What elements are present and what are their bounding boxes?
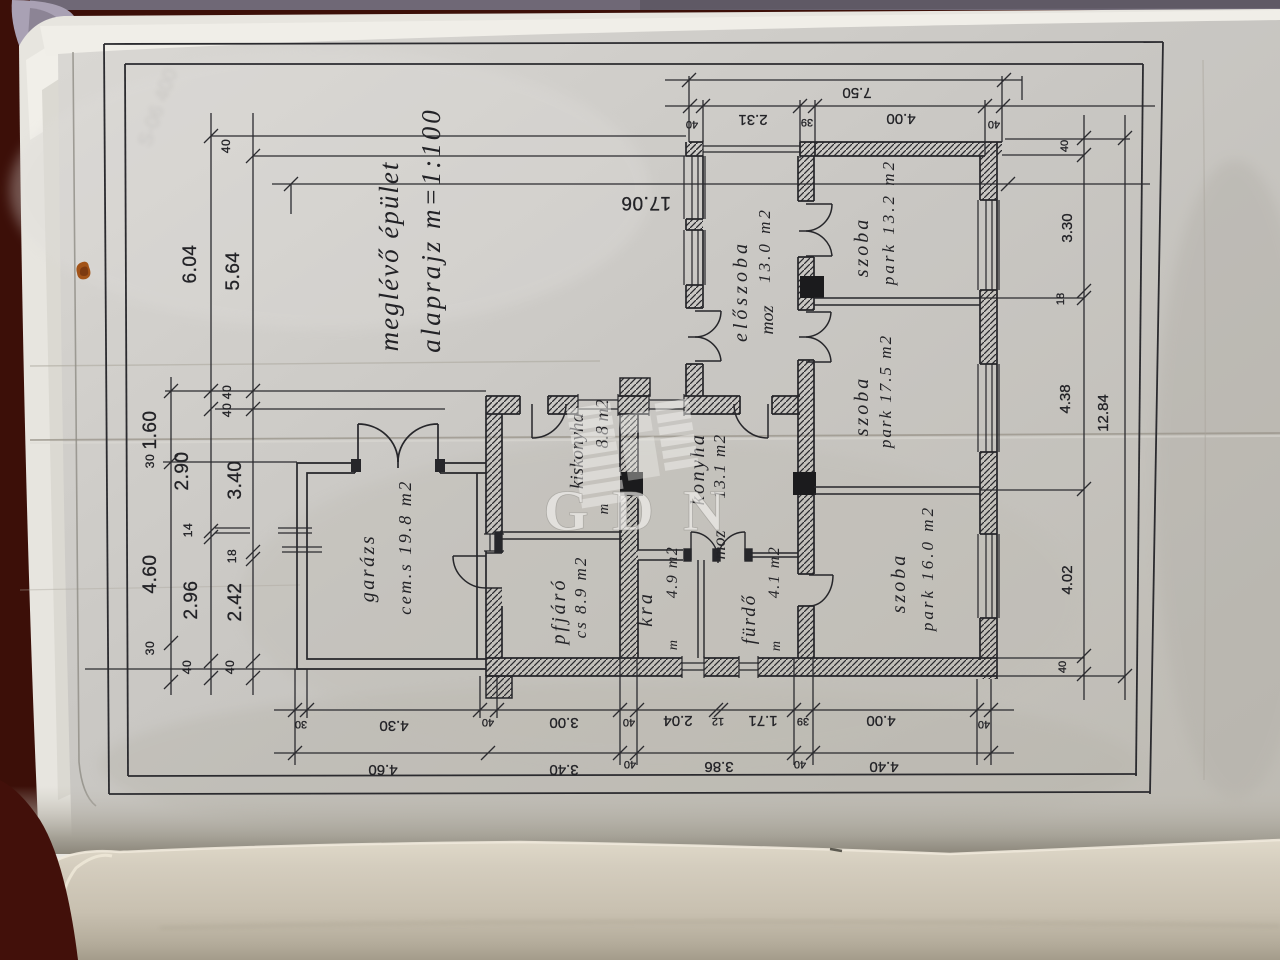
svg-text:7.50: 7.50 [842, 84, 871, 101]
svg-text:40: 40 [223, 660, 237, 674]
svg-text:G: G [543, 478, 588, 543]
svg-text:alaprajz m=1:100: alaprajz m=1:100 [416, 107, 446, 352]
svg-text:4.60: 4.60 [368, 761, 397, 778]
svg-text:40: 40 [220, 403, 234, 417]
svg-text:14: 14 [181, 523, 195, 537]
svg-text:40: 40 [220, 385, 234, 399]
svg-text:4.30: 4.30 [379, 717, 408, 734]
svg-text:39: 39 [797, 715, 809, 727]
svg-text:12.84: 12.84 [1095, 394, 1112, 432]
svg-text:4.02: 4.02 [1059, 565, 1076, 594]
svg-text:18: 18 [1055, 293, 1067, 305]
svg-text:4.38: 4.38 [1057, 384, 1074, 413]
svg-text:13.0 m2: 13.0 m2 [755, 207, 774, 283]
svg-text:2.04: 2.04 [663, 712, 692, 729]
svg-text:6.04: 6.04 [180, 245, 201, 284]
svg-text:4.00: 4.00 [866, 712, 895, 729]
svg-text:4.1 m2: 4.1 m2 [766, 546, 783, 599]
svg-text:pfjáró: pfjáró [548, 578, 570, 647]
svg-text:2.90: 2.90 [172, 452, 193, 491]
svg-text:3.00: 3.00 [549, 714, 578, 731]
svg-text:2.42: 2.42 [225, 583, 246, 622]
svg-text:3.86: 3.86 [704, 758, 733, 775]
svg-text:2.96: 2.96 [181, 581, 202, 620]
svg-text:40: 40 [482, 716, 494, 728]
svg-text:moz: moz [757, 305, 777, 334]
svg-text:D: D [612, 478, 654, 543]
svg-text:40: 40 [794, 758, 806, 770]
svg-text:szoba: szoba [851, 217, 873, 278]
svg-text:40: 40 [988, 118, 1000, 130]
svg-text:meglévő épület: meglévő épület [374, 161, 404, 352]
svg-text:30: 30 [295, 718, 307, 730]
svg-text:5.64: 5.64 [223, 252, 244, 291]
svg-text:N: N [683, 478, 725, 543]
svg-text:m: m [666, 640, 681, 650]
svg-text:4.9 m2: 4.9 m2 [664, 546, 681, 599]
svg-text:12: 12 [712, 715, 724, 727]
svg-text:m: m [769, 641, 784, 651]
svg-text:40: 40 [1057, 661, 1069, 673]
svg-text:1.60: 1.60 [140, 411, 161, 450]
svg-text:4.40: 4.40 [869, 758, 898, 775]
svg-text:4.60: 4.60 [140, 555, 161, 594]
svg-text:3.30: 3.30 [1059, 213, 1076, 242]
svg-text:40: 40 [978, 718, 990, 730]
svg-text:cs 8.9 m2: cs 8.9 m2 [571, 556, 590, 639]
svg-text:17.06: 17.06 [621, 192, 671, 213]
svg-text:szoba: szoba [851, 376, 873, 437]
svg-text:4.00: 4.00 [886, 110, 915, 127]
svg-text:fürdő: fürdő [739, 594, 760, 644]
svg-text:30: 30 [143, 641, 157, 655]
svg-text:szoba: szoba [888, 553, 910, 614]
svg-text:park 17.5 m2: park 17.5 m2 [876, 334, 895, 449]
svg-text:40: 40 [686, 118, 698, 130]
svg-text:40: 40 [1059, 140, 1071, 152]
svg-text:park 16.0 m2: park 16.0 m2 [918, 505, 937, 632]
svg-text:39: 39 [801, 116, 813, 128]
svg-text:kra: kra [635, 591, 657, 627]
svg-text:40: 40 [180, 660, 194, 674]
svg-text:park 13.2 m2: park 13.2 m2 [879, 159, 898, 286]
svg-text:18: 18 [225, 549, 239, 563]
svg-text:garázs: garázs [357, 534, 379, 602]
svg-text:30: 30 [143, 454, 157, 468]
svg-text:előszoba: előszoba [730, 240, 752, 342]
svg-text:3.40: 3.40 [549, 761, 578, 778]
svg-text:40: 40 [219, 139, 233, 153]
svg-text:40: 40 [624, 758, 636, 770]
svg-text:cem.s 19.8 m2: cem.s 19.8 m2 [395, 479, 415, 614]
svg-text:40: 40 [623, 716, 635, 728]
svg-text:3.40: 3.40 [225, 461, 246, 500]
svg-text:2.31: 2.31 [738, 111, 767, 128]
svg-text:1.71: 1.71 [748, 712, 777, 729]
